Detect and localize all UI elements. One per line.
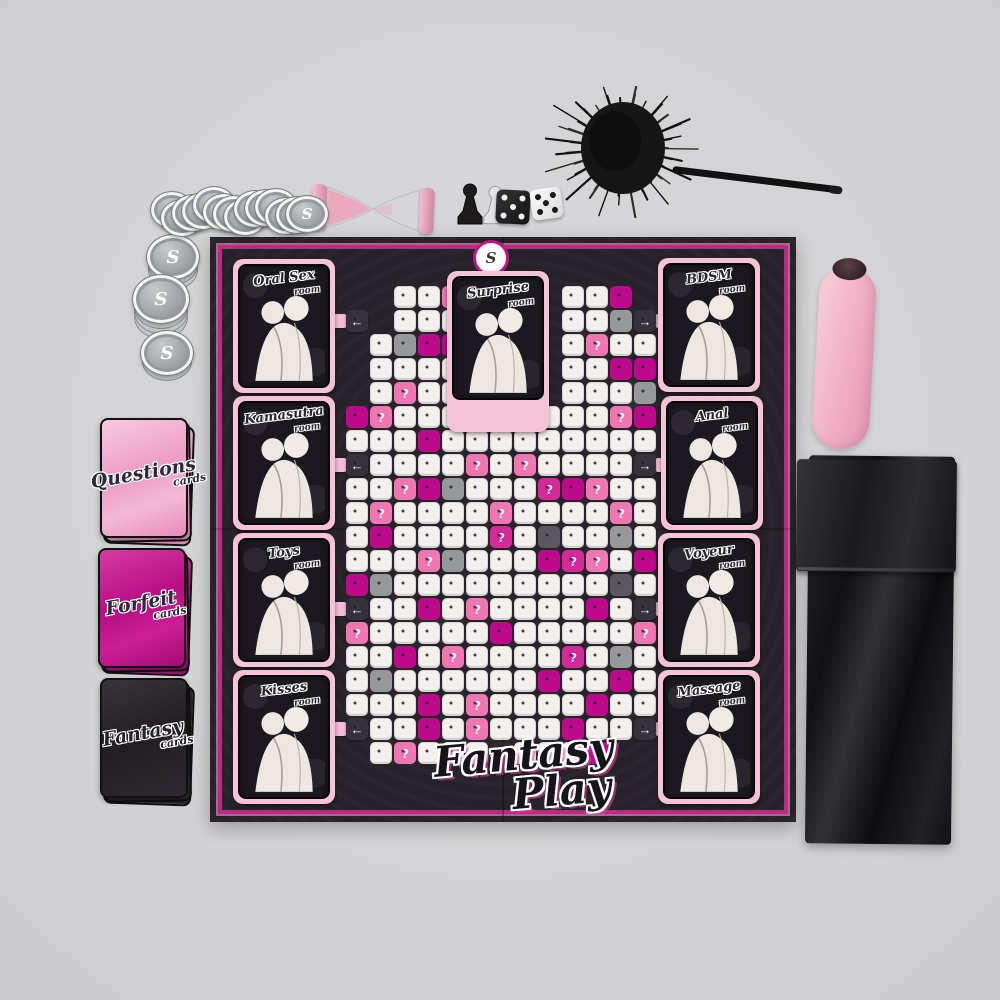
track-space-magenta <box>370 526 392 548</box>
track-space-white <box>466 646 488 668</box>
room-card-toys: Toysroom <box>238 538 330 662</box>
track-space-pink-question: ? <box>610 406 632 428</box>
die-pip <box>510 204 516 210</box>
track-space-magenta <box>490 622 512 644</box>
track-space-magenta <box>586 598 608 620</box>
track-space-white <box>586 382 608 404</box>
track-space-white <box>586 310 608 332</box>
track-space-white <box>370 478 392 500</box>
track-space-white <box>610 550 632 572</box>
track-space-magenta <box>634 358 656 380</box>
track-space-dark-gray <box>538 526 560 548</box>
track-space-magenta <box>610 358 632 380</box>
track-space-white <box>490 478 512 500</box>
track-space-white <box>466 478 488 500</box>
track-space-white <box>442 694 464 716</box>
track-space-pink-question: ? <box>514 454 536 476</box>
vibrator-body <box>811 266 877 451</box>
track-space-white <box>610 598 632 620</box>
track-space-white <box>418 358 440 380</box>
track-space-white <box>514 670 536 692</box>
track-space-white <box>466 430 488 452</box>
track-space-white <box>394 526 416 548</box>
track-space-white <box>586 454 608 476</box>
photo-backdrop: SSSSSSSSSSSSSS SSS <box>0 0 1000 1000</box>
track-space-white <box>394 670 416 692</box>
coin-token[interactable]: S <box>285 195 329 233</box>
track-space-white <box>634 526 656 548</box>
track-space-white <box>562 454 584 476</box>
track-space-magenta <box>634 406 656 428</box>
sand-timer-cap <box>418 188 435 234</box>
track-space-white <box>442 526 464 548</box>
track-space-white <box>418 454 440 476</box>
track-space-white <box>634 694 656 716</box>
track-space-white <box>514 502 536 524</box>
room-card-kisses: Kissesroom <box>238 675 330 799</box>
satin-blindfold[interactable] <box>793 451 965 849</box>
die-pip-empty <box>501 203 507 209</box>
track-space-white <box>634 646 656 668</box>
track-space-gray <box>634 382 656 404</box>
track-space-white <box>562 310 584 332</box>
brand-logo-letter: S <box>486 249 497 267</box>
track-space-white <box>562 286 584 308</box>
track-space-white <box>466 526 488 548</box>
track-space-pink-question: ? <box>586 478 608 500</box>
track-space-white <box>562 334 584 356</box>
arrow-space: → <box>634 598 656 620</box>
track-space-white <box>586 670 608 692</box>
track-space-white <box>514 574 536 596</box>
track-space-white <box>370 454 392 476</box>
track-space-white <box>418 622 440 644</box>
track-space-white <box>610 478 632 500</box>
track-space-white <box>394 550 416 572</box>
deck-back-face: Fantasy cards <box>100 678 188 798</box>
track-space-white <box>538 502 560 524</box>
track-space-white <box>490 454 512 476</box>
track-space-white <box>610 382 632 404</box>
track-space-white <box>562 526 584 548</box>
track-space-white <box>562 502 584 524</box>
track-space-white <box>610 430 632 452</box>
track-space-white <box>418 382 440 404</box>
track-space-white <box>346 478 368 500</box>
track-space-white <box>370 718 392 740</box>
room-card-face: Surpriseroom <box>452 276 544 400</box>
track-space-magenta-question: ? <box>490 526 512 548</box>
track-space-pink-question: ? <box>394 478 416 500</box>
die-pip-empty <box>518 204 524 210</box>
track-space-magenta-question: ? <box>562 550 584 572</box>
track-space-white <box>418 646 440 668</box>
room-card-surprise: Surpriseroom <box>452 276 544 400</box>
room-card-face: BDSMroom <box>663 263 755 387</box>
track-space-magenta <box>562 478 584 500</box>
track-space-magenta <box>418 430 440 452</box>
track-space-white <box>394 718 416 740</box>
coin-stack-top[interactable]: S <box>140 330 194 376</box>
deck-title: Forfeit cards <box>104 586 180 630</box>
track-space-white <box>346 430 368 452</box>
feather-tickler[interactable] <box>545 86 855 223</box>
track-space-white <box>394 574 416 596</box>
track-space-white <box>466 670 488 692</box>
track-space-magenta <box>538 550 560 572</box>
room-card-bdsm: BDSMroom <box>663 263 755 387</box>
track-space-magenta <box>418 598 440 620</box>
track-space-magenta <box>586 694 608 716</box>
arrow-space: → <box>634 718 656 740</box>
track-space-magenta <box>610 286 632 308</box>
track-space-white <box>562 622 584 644</box>
track-space-pink-question: ? <box>634 622 656 644</box>
room-card-kamasutra: Kamasutraroom <box>238 401 330 525</box>
track-space-magenta-question: ? <box>562 646 584 668</box>
track-space-white <box>490 646 512 668</box>
track-space-white <box>514 526 536 548</box>
game-board: S ?←→???↑?←??→??????????←?→?????←?→?Star… <box>210 237 796 822</box>
arrow-space: ← <box>346 598 368 620</box>
track-space-white <box>586 526 608 548</box>
track-space-white <box>538 646 560 668</box>
track-space-white <box>418 406 440 428</box>
track-space-white <box>490 550 512 572</box>
track-space-white <box>514 478 536 500</box>
vibrator[interactable] <box>809 257 881 452</box>
track-space-white <box>490 598 512 620</box>
room-card-face: Kamasutraroom <box>238 401 330 525</box>
coin-stack-top[interactable]: S <box>132 274 190 324</box>
track-space-white <box>370 550 392 572</box>
track-space-pink-question: ? <box>586 550 608 572</box>
track-space-white <box>634 430 656 452</box>
track-space-dark-gray <box>610 574 632 596</box>
track-space-white <box>538 574 560 596</box>
room-card-massage: Massageroom <box>663 675 755 799</box>
track-space-white <box>562 694 584 716</box>
track-space-white <box>394 694 416 716</box>
room-card-face: Toysroom <box>238 538 330 662</box>
track-space-white <box>586 286 608 308</box>
arrow-space: → <box>634 310 656 332</box>
track-space-gray <box>442 478 464 500</box>
track-space-white <box>562 670 584 692</box>
track-space-white <box>610 334 632 356</box>
track-space-pink-question: ? <box>466 598 488 620</box>
track-space-white <box>514 694 536 716</box>
track-space-pink-question: ? <box>418 550 440 572</box>
track-space-magenta <box>538 670 560 692</box>
deck-title: Questions cards <box>89 453 199 503</box>
room-card-face: Oral Sexroom <box>238 264 330 388</box>
die-black[interactable] <box>495 189 531 225</box>
track-space-gray <box>610 310 632 332</box>
track-space-magenta <box>610 670 632 692</box>
track-space-white <box>442 670 464 692</box>
track-space-white <box>346 694 368 716</box>
track-space-magenta <box>634 550 656 572</box>
track-space-white <box>586 406 608 428</box>
sand-timer-glass <box>325 186 420 231</box>
die-pip <box>518 213 524 219</box>
track-space-magenta <box>394 646 416 668</box>
track-space-white <box>514 430 536 452</box>
track-space-white <box>490 670 512 692</box>
track-space-white <box>418 286 440 308</box>
track-space-pink-question: ? <box>490 502 512 524</box>
track-space-white <box>586 358 608 380</box>
track-space-pink-question: ? <box>442 646 464 668</box>
track-space-pink-question: ? <box>466 454 488 476</box>
track-space-white <box>634 334 656 356</box>
track-space-white <box>370 646 392 668</box>
track-space-white <box>346 550 368 572</box>
track-space-white <box>562 430 584 452</box>
track-space-white <box>466 622 488 644</box>
track-space-white <box>370 382 392 404</box>
room-card-face: Massageroom <box>663 675 755 799</box>
room-card-voyeur: Voyeurroom <box>663 538 755 662</box>
die-pip-empty <box>536 201 543 208</box>
track-space-magenta-question: ? <box>538 478 560 500</box>
track-space-pink-question: ? <box>466 694 488 716</box>
track-space-white <box>394 430 416 452</box>
track-space-white <box>490 574 512 596</box>
track-space-white <box>466 550 488 572</box>
tickler-handle <box>672 166 838 193</box>
track-space-white <box>538 430 560 452</box>
room-card-face: Analroom <box>666 401 758 525</box>
track-space-white <box>394 286 416 308</box>
track-space-magenta <box>418 478 440 500</box>
track-space-magenta <box>346 574 368 596</box>
track-space-gray <box>370 670 392 692</box>
deck-back-face: Questions cards <box>100 418 188 538</box>
track-space-white <box>394 454 416 476</box>
track-space-pink-question: ? <box>370 502 392 524</box>
room-card-anal: Analroom <box>666 401 758 525</box>
board-title: Fantasy Play <box>407 725 643 823</box>
deck-title: Fantasy cards <box>101 715 187 761</box>
track-space-white <box>634 502 656 524</box>
track-space-white <box>346 646 368 668</box>
die-pip <box>537 209 544 216</box>
track-space-white <box>562 406 584 428</box>
track-space-white <box>514 550 536 572</box>
track-space-white <box>610 694 632 716</box>
track-space-white <box>394 310 416 332</box>
arrow-space: ← <box>346 718 368 740</box>
track-space-white <box>370 694 392 716</box>
track-space-white <box>562 598 584 620</box>
arrow-space: ← <box>346 310 368 332</box>
track-space-white <box>370 430 392 452</box>
track-space-white <box>586 430 608 452</box>
room-card-oral-sex: Oral Sexroom <box>238 264 330 388</box>
die-pip <box>519 196 525 202</box>
track-space-white <box>610 454 632 476</box>
track-space-white <box>442 598 464 620</box>
track-space-white <box>466 502 488 524</box>
track-space-gray <box>610 526 632 548</box>
track-space-white <box>442 502 464 524</box>
track-space-pink-question: ? <box>586 334 608 356</box>
track-space-white <box>634 574 656 596</box>
track-space-white <box>418 526 440 548</box>
track-space-white <box>514 646 536 668</box>
track-space-white <box>394 358 416 380</box>
sand-timer[interactable] <box>311 182 435 236</box>
track-space-white <box>442 622 464 644</box>
room-card-face: Kissesroom <box>238 675 330 799</box>
track-space-white <box>418 574 440 596</box>
room-card-face: Voyeurroom <box>663 538 755 662</box>
deck-fantasy-cards[interactable]: Fantasy cards <box>100 678 188 798</box>
track-space-white <box>370 622 392 644</box>
track-space-pink-question: ? <box>346 622 368 644</box>
track-space-white <box>442 454 464 476</box>
deck-questions-cards[interactable]: Questions cards <box>100 418 188 538</box>
track-space-white <box>562 574 584 596</box>
blindfold-fold <box>796 459 957 573</box>
track-space-white <box>370 598 392 620</box>
track-space-pink-question: ? <box>610 502 632 524</box>
track-space-gray <box>370 574 392 596</box>
track-space-white <box>346 502 368 524</box>
track-space-magenta <box>418 694 440 716</box>
track-space-white <box>538 694 560 716</box>
track-space-white <box>418 502 440 524</box>
track-space-magenta <box>418 334 440 356</box>
track-space-white <box>514 598 536 620</box>
track-space-white <box>490 694 512 716</box>
track-space-pink-question: ? <box>394 382 416 404</box>
track-space-white <box>394 622 416 644</box>
track-space-white <box>538 598 560 620</box>
track-space-white <box>514 622 536 644</box>
track-space-white <box>346 670 368 692</box>
arrow-space: ← <box>346 454 368 476</box>
track-space-white <box>394 502 416 524</box>
track-space-white <box>394 406 416 428</box>
track-space-white <box>370 358 392 380</box>
track-space-white <box>394 598 416 620</box>
die-pip-empty <box>510 195 516 201</box>
track-space-gray <box>442 550 464 572</box>
track-space-white <box>562 358 584 380</box>
deck-back-face: Forfeit cards <box>98 548 186 668</box>
track-space-white <box>490 430 512 452</box>
die-pip <box>501 212 507 218</box>
track-space-white <box>586 502 608 524</box>
track-space-white <box>586 574 608 596</box>
track-space-white <box>538 454 560 476</box>
die-pip-empty <box>509 212 515 218</box>
coin-stack-top[interactable]: S <box>146 234 200 280</box>
die-pip <box>534 194 541 201</box>
track-space-white <box>442 430 464 452</box>
track-space-white <box>370 742 392 764</box>
track-space-white <box>418 670 440 692</box>
track-space-white <box>466 574 488 596</box>
track-space-white <box>370 334 392 356</box>
track-space-white <box>418 310 440 332</box>
track-space-white <box>586 622 608 644</box>
track-space-white <box>634 478 656 500</box>
track-space-white <box>346 526 368 548</box>
track-space-white <box>538 622 560 644</box>
track-space-gray <box>394 334 416 356</box>
deck-forfeit-cards[interactable]: Forfeit cards <box>98 548 186 668</box>
track-space-white <box>634 670 656 692</box>
track-space-white <box>586 646 608 668</box>
track-space-magenta <box>346 406 368 428</box>
arrow-space: → <box>634 454 656 476</box>
track-space-pink-question: ? <box>370 406 392 428</box>
track-space-white <box>610 622 632 644</box>
track-space-white <box>442 574 464 596</box>
track-space-gray <box>610 646 632 668</box>
track-space-white <box>562 382 584 404</box>
die-pip <box>502 195 508 201</box>
